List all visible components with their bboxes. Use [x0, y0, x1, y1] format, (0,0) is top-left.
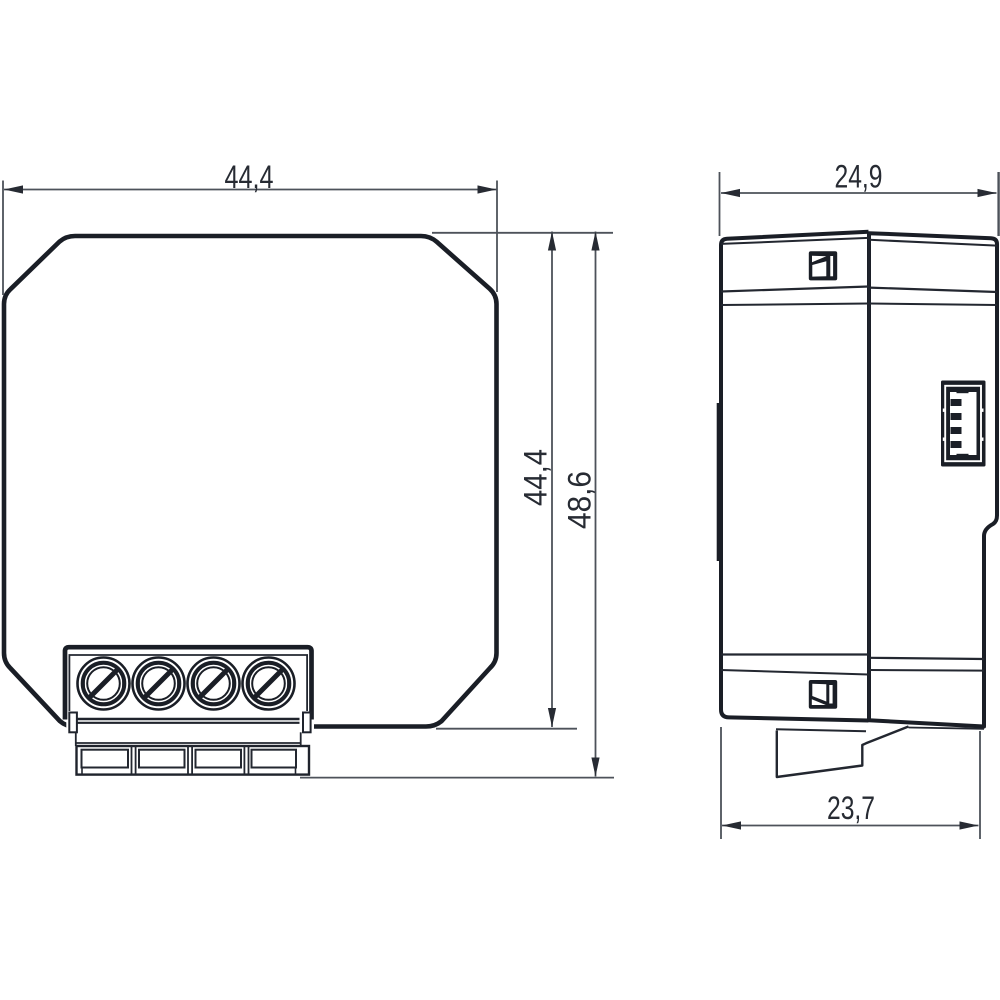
svg-text:44,4: 44,4: [518, 449, 554, 506]
svg-text:44,4: 44,4: [225, 159, 274, 195]
svg-text:48,6: 48,6: [562, 471, 598, 529]
svg-text:24,9: 24,9: [835, 159, 883, 195]
svg-text:23,7: 23,7: [827, 790, 875, 826]
